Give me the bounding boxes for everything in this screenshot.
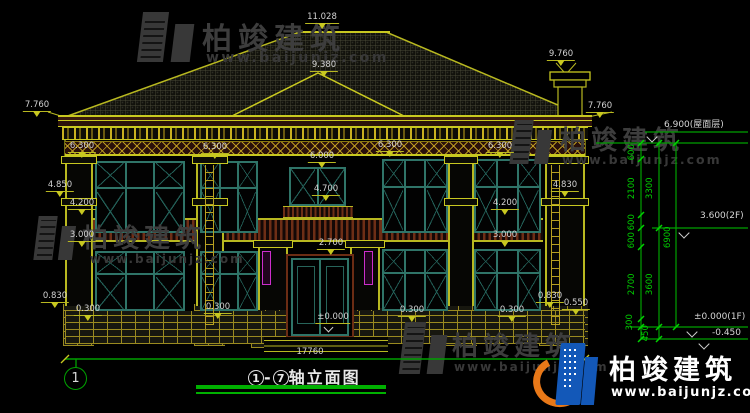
dim-eave-right: 7.760 <box>586 102 614 113</box>
axis-circle-start: 1 <box>248 370 264 386</box>
logo-window-dots <box>564 349 566 351</box>
dim-small-window: 4.700 <box>312 185 340 196</box>
vdim-3300: 3300 <box>646 168 655 208</box>
axis-circle-end: 7 <box>273 370 289 386</box>
vdim-600-a: 600 <box>628 132 637 172</box>
dim-right-plinth: 0.550 <box>562 299 590 310</box>
dim-gable: 9.380 <box>310 61 338 72</box>
dim-total-width: 17760 <box>294 348 325 358</box>
dim-ridge: 11.028 <box>305 13 339 24</box>
dim-left-capital: 4.850 <box>46 181 74 192</box>
dim-door-top: 2.700 <box>317 239 345 250</box>
title-underline-thick <box>196 385 386 389</box>
dim-left-sill-2: 0.300 <box>204 303 232 314</box>
title-underline-thin <box>196 392 386 394</box>
vdim-300: 300 <box>626 302 635 342</box>
dim-right-sill: 0.300 <box>498 306 526 317</box>
vdim-6900: 6900 <box>664 217 673 257</box>
dim-left-sill-1: 0.300 <box>74 305 102 316</box>
level-text-ground: -0.450 <box>712 329 741 338</box>
dim-left-pier: 0.830 <box>41 292 69 303</box>
dim-band-3: 6.300 <box>376 141 404 152</box>
dim-right-rail: 3.000 <box>491 231 519 242</box>
level-text-roof: 6.900(屋面层) <box>664 121 724 130</box>
dim-eave-left: 7.760 <box>23 101 51 112</box>
dim-band-1: 6.300 <box>68 142 96 153</box>
logo-url-text: www.baijunjz.com <box>611 385 750 400</box>
logo-brand-text: 柏竣建筑 <box>609 348 737 387</box>
dim-right-capital: 4.830 <box>551 181 579 192</box>
dim-door-zero: ±0.000 <box>315 313 350 324</box>
vdim-3600: 3600 <box>646 264 655 304</box>
dim-right-pier: 0.830 <box>536 292 564 303</box>
dim-mid-sill: 0.300 <box>398 306 426 317</box>
level-text-1f: ±0.000(1F) <box>694 313 745 322</box>
vdim-600-c: 600 <box>628 220 637 260</box>
dim-left-window: 4.200 <box>68 199 96 210</box>
level-text-2f: 3.600(2F) <box>700 212 744 221</box>
dim-chimney: 9.760 <box>547 50 575 61</box>
cad-elevation-drawing: 柏竣建筑 www.baijunjz.com 柏竣建筑 www.baijunjz.… <box>0 0 750 413</box>
dim-left-rail: 3.000 <box>68 231 96 242</box>
dim-right-window: 4.200 <box>491 199 519 210</box>
dim-center-band: 6.000 <box>308 152 336 163</box>
brand-logo: 柏竣建筑 www.baijunjz.com <box>533 341 750 413</box>
axis-bubble-1: 1 <box>64 367 87 390</box>
logo-building-icon-2 <box>581 357 598 405</box>
dim-band-2: 6.300 <box>201 143 229 154</box>
dim-band-4: 6.300 <box>486 142 514 153</box>
vdim-2700: 2700 <box>628 264 637 304</box>
